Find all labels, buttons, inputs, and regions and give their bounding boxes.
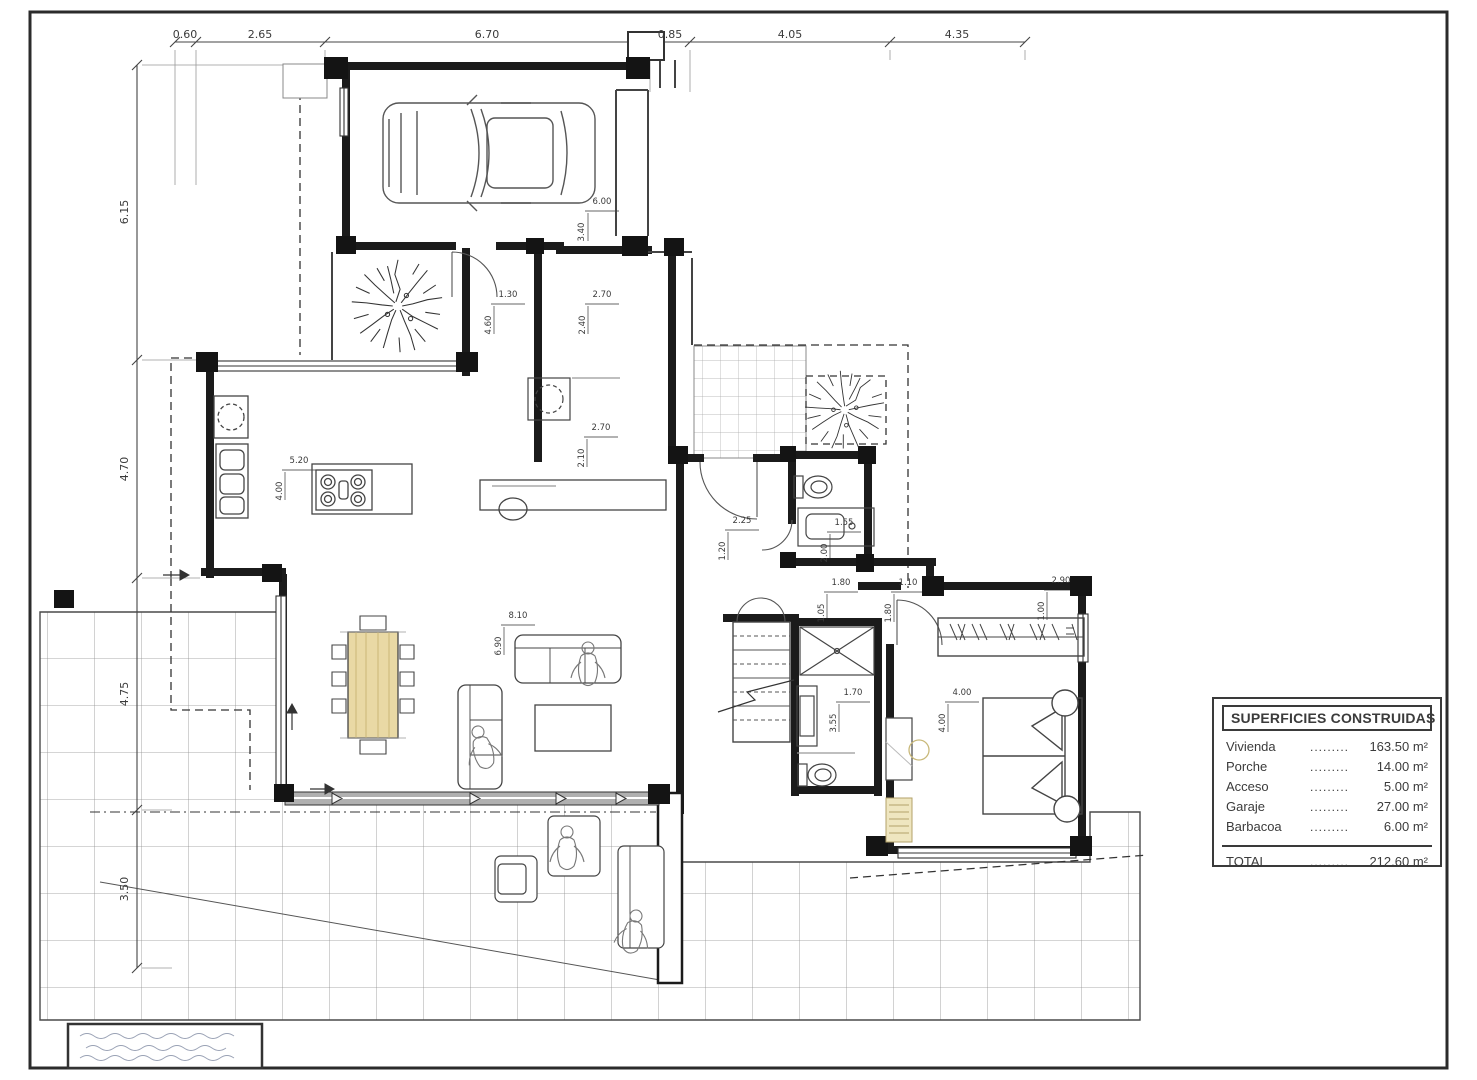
dim-label: 4.00 <box>275 482 285 501</box>
outdoor-sofa <box>618 846 664 948</box>
dim-label: 3.50 <box>118 877 131 902</box>
person-figure <box>571 642 605 686</box>
stool <box>499 498 527 520</box>
dim-label: 2.70 <box>593 290 612 300</box>
legend-l-dots: ............ <box>1310 780 1348 794</box>
bath-door-arc <box>762 520 792 550</box>
dim-label: 1.10 <box>899 578 918 588</box>
legend-row: Acceso............5.00 m² <box>1226 779 1428 794</box>
legend-total-row: TOTAL ............ 212.60 m² <box>1222 845 1432 869</box>
dim-label: 1.80 <box>884 604 894 623</box>
bedroom <box>938 618 1084 822</box>
tree-icon <box>352 260 442 352</box>
bedroom-door-arc <box>897 600 942 645</box>
legend-total-dots: ............ <box>1310 855 1348 869</box>
legend-rows: Vivienda............163.50 m²Porche.....… <box>1222 731 1432 843</box>
window <box>215 361 463 371</box>
sliding-door <box>285 792 659 805</box>
dim-label: 1.05 <box>817 604 827 623</box>
walls <box>205 66 1082 850</box>
dim-label: 3.55 <box>829 714 839 733</box>
floor-plan-drawing: 0.602.656.700.854.054.356.154.704.753.50… <box>0 0 1477 1080</box>
shower <box>800 627 874 675</box>
stove <box>316 470 372 510</box>
dim-label: 2.65 <box>248 28 273 41</box>
stairs <box>718 622 794 742</box>
pool <box>68 1024 262 1068</box>
dim-label: 5.20 <box>290 456 309 466</box>
floor-plan-sheet: 0.602.656.700.854.054.356.154.704.753.50… <box>0 0 1477 1080</box>
legend-l-label: Garaje <box>1226 799 1310 814</box>
dim-label: 6.15 <box>118 200 131 225</box>
dim-label: 0.85 <box>658 28 683 41</box>
dim-label: 0.60 <box>173 28 198 41</box>
areas-legend: SUPERFICIES CONSTRUIDAS Vivienda........… <box>1212 697 1442 867</box>
entry-door-arc <box>700 462 757 519</box>
dim-label: 1.80 <box>832 578 851 588</box>
legend-l-dots: ............ <box>1310 820 1348 834</box>
legend-row: Barbacoa............6.00 m² <box>1226 819 1428 834</box>
window <box>1078 614 1088 662</box>
legend-l-value: 163.50 m² <box>1348 739 1428 754</box>
window <box>276 596 286 789</box>
dim-label: 1.55 <box>835 518 854 528</box>
dim-label: 4.00 <box>938 714 948 733</box>
bathroom-2 <box>797 627 874 786</box>
barbacoa-area <box>886 718 929 842</box>
bathroom-1 <box>794 476 874 546</box>
legend-l-dots: ............ <box>1310 740 1348 754</box>
toilet <box>794 476 832 498</box>
dim-label: 4.75 <box>118 682 131 707</box>
dim-label: 2.90 <box>1052 576 1071 586</box>
garage-door-arc <box>452 252 497 297</box>
legend-title: SUPERFICIES CONSTRUIDAS <box>1222 705 1432 731</box>
armchair <box>495 856 537 902</box>
living-dining <box>332 616 621 789</box>
dim-label: 4.60 <box>484 316 494 335</box>
legend-total-label: TOTAL <box>1226 854 1310 869</box>
window <box>340 88 348 136</box>
dim-label: 1.20 <box>718 542 728 561</box>
legend-l-value: 27.00 m² <box>1348 799 1428 814</box>
dim-label: 4.35 <box>945 28 970 41</box>
dim-label: 8.10 <box>509 611 528 621</box>
dim-label: 6.00 <box>593 197 612 207</box>
legend-l-label: Barbacoa <box>1226 819 1310 834</box>
legend-l-dots: ............ <box>1310 800 1348 814</box>
dim-label: 1.30 <box>499 290 518 300</box>
toilet <box>798 764 836 786</box>
sofa <box>515 635 621 683</box>
dim-label: 2.70 <box>592 423 611 433</box>
dim-label: 4.00 <box>953 688 972 698</box>
legend-l-dots: ............ <box>1310 760 1348 774</box>
dim-label: 1.70 <box>844 688 863 698</box>
legend-l-value: 5.00 m² <box>1348 779 1428 794</box>
dim-label: 6.90 <box>494 637 504 656</box>
dining-table <box>332 616 414 754</box>
dim-label: 4.70 <box>118 457 131 482</box>
bed <box>983 690 1082 822</box>
dim-label: 4.05 <box>778 28 803 41</box>
counter <box>480 480 666 510</box>
fridge <box>214 396 248 438</box>
sink-unit <box>216 444 248 518</box>
legend-l-label: Porche <box>1226 759 1310 774</box>
dim-label: 2.10 <box>577 449 587 468</box>
legend-total-value: 212.60 m² <box>1348 854 1428 869</box>
patio-grid <box>694 346 806 458</box>
legend-row: Porche............14.00 m² <box>1226 759 1428 774</box>
legend-l-label: Vivienda <box>1226 739 1310 754</box>
dim-label: 2.40 <box>578 316 588 335</box>
dim-label: 3.40 <box>577 223 587 242</box>
dim-label: 2.25 <box>733 516 752 526</box>
dim-label: 2.00 <box>820 544 830 563</box>
dim-label: 1.00 <box>1037 602 1047 621</box>
wardrobe <box>938 618 1084 656</box>
dim-label: 6.70 <box>475 28 500 41</box>
legend-l-value: 6.00 m² <box>1348 819 1428 834</box>
person-figure <box>460 722 504 773</box>
car <box>383 95 595 211</box>
side-step <box>283 64 327 98</box>
legend-row: Garaje............27.00 m² <box>1226 799 1428 814</box>
coffee-table <box>535 705 611 751</box>
legend-l-value: 14.00 m² <box>1348 759 1428 774</box>
legend-l-label: Acceso <box>1226 779 1310 794</box>
window <box>898 848 1076 858</box>
legend-row: Vivienda............163.50 m² <box>1226 739 1428 754</box>
